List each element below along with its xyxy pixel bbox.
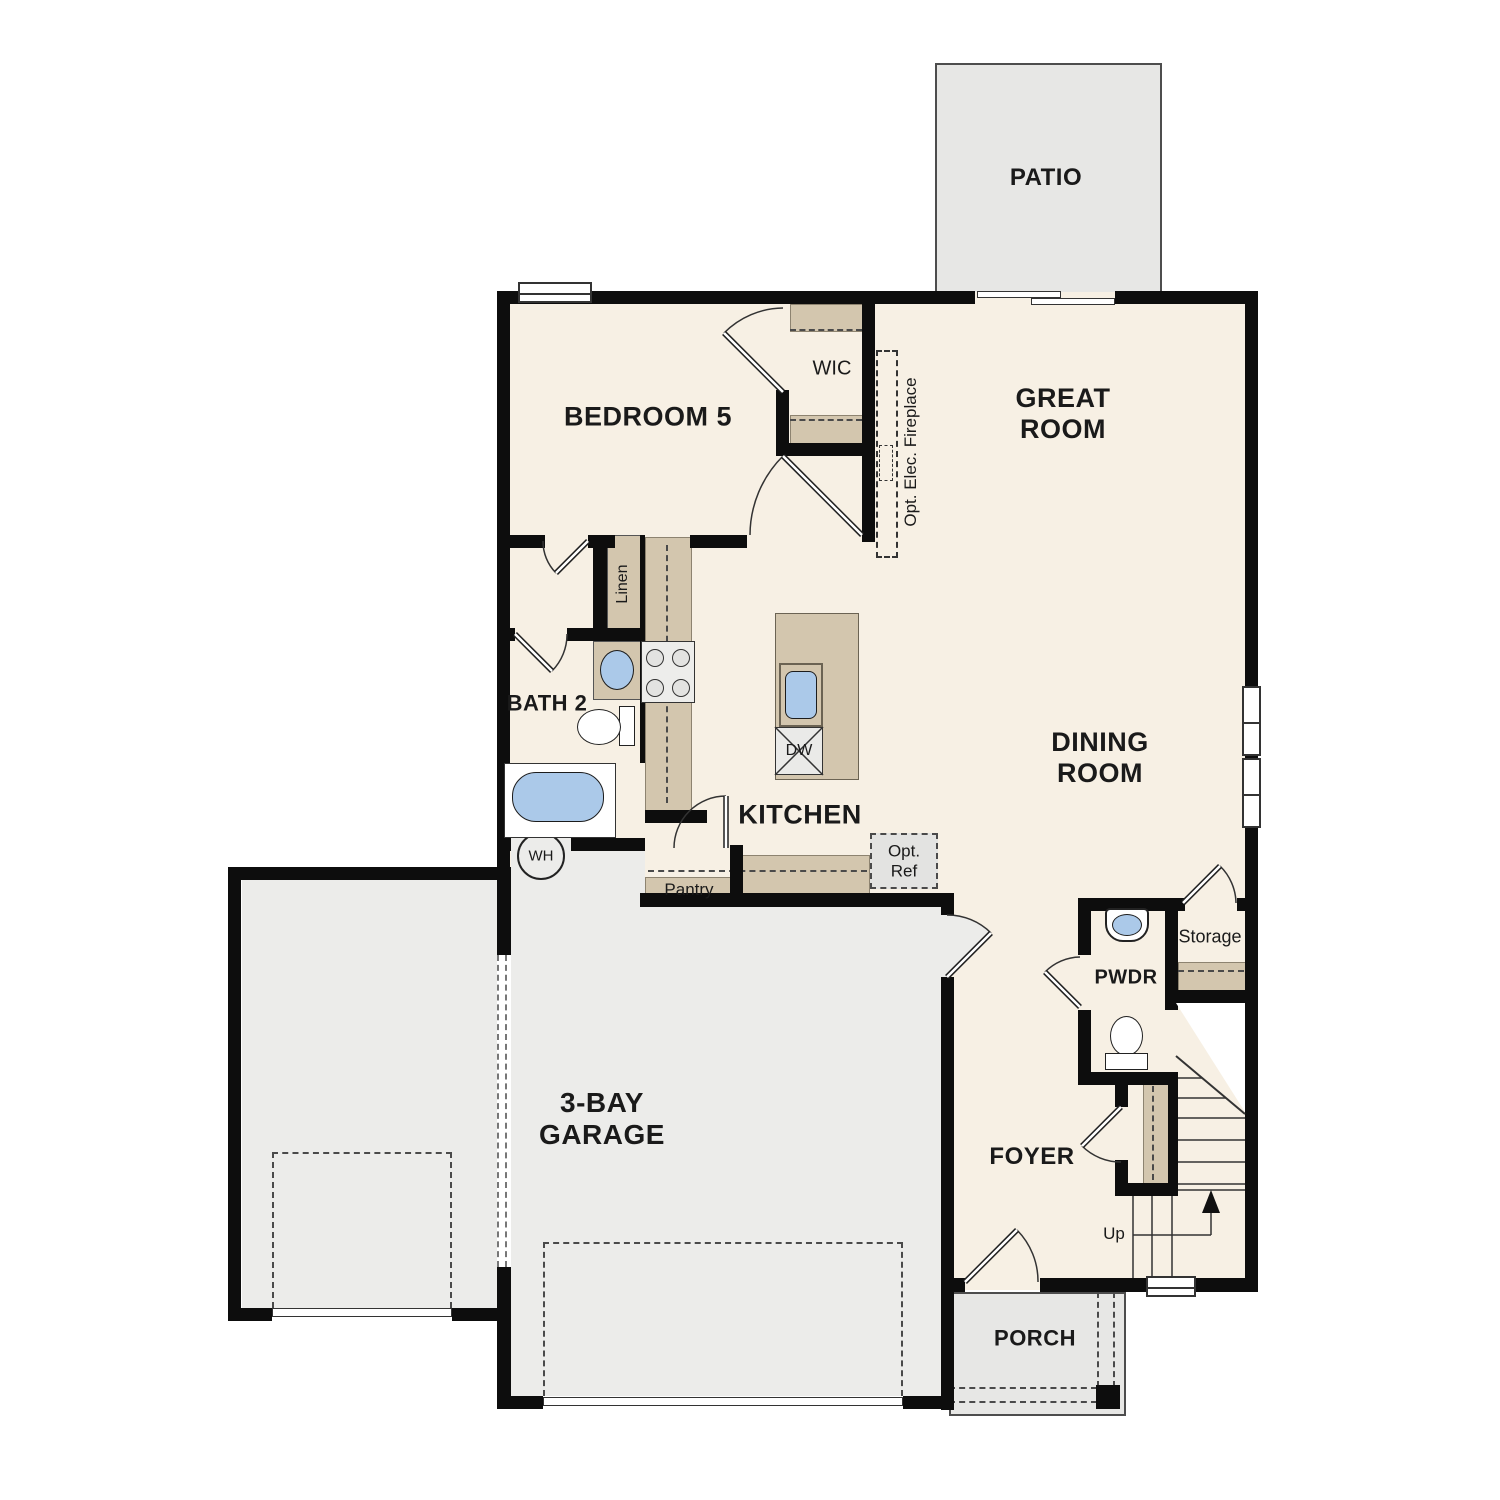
pwdr-door-arc [1045,957,1080,972]
label-up: Up [1103,1224,1125,1244]
plan-lines [0,0,1500,1500]
wic-door-arc [724,308,783,333]
label-bedroom5: BEDROOM 5 [564,401,732,432]
floor-plan: PATIO BEDROOM 5 WIC GREAT ROOM Opt. Elec… [0,0,1500,1500]
label-opt-ref-line2: Ref [888,861,920,881]
label-great-room-line2: ROOM [1016,414,1111,445]
stairs-void [1176,1003,1245,1112]
closet-door-arc [1082,1146,1121,1162]
label-garage-line1: 3-BAY [539,1087,665,1119]
label-bath2: BATH 2 [507,690,588,715]
label-garage: 3-BAY GARAGE [539,1087,665,1151]
bath2-door-arc [552,634,567,671]
label-pwdr: PWDR [1094,967,1157,990]
up-arrow-head [1202,1190,1220,1213]
label-porch: PORCH [994,1325,1076,1350]
label-foyer: FOYER [989,1143,1074,1171]
label-wh: WH [529,847,554,864]
label-opt-ref: Opt. Ref [888,841,920,880]
label-opt-fireplace: Opt. Elec. Fireplace [901,377,921,526]
label-dining-room-line1: DINING [1051,727,1149,758]
label-linen: Linen [614,564,632,603]
label-great-room: GREAT ROOM [1016,383,1111,445]
label-storage: Storage [1178,927,1241,948]
label-great-room-line1: GREAT [1016,383,1111,414]
label-kitchen: KITCHEN [738,799,862,830]
label-dw: DW [786,742,813,760]
pantry-door-arc [674,796,726,848]
label-garage-line2: GARAGE [539,1119,665,1151]
label-dining-room: DINING ROOM [1051,727,1149,789]
bedroom-hall-door-arc [543,541,556,573]
label-pantry: Pantry [664,880,713,900]
stairs [1133,1003,1245,1278]
label-wic: WIC [813,358,852,381]
storage-door-arc [1220,866,1236,903]
label-dining-room-line2: ROOM [1051,758,1149,789]
label-patio: PATIO [1010,164,1082,192]
bedroom-entry-door-arc [750,456,783,535]
front-door-arc [1017,1230,1038,1282]
label-opt-ref-line1: Opt. [888,841,920,861]
